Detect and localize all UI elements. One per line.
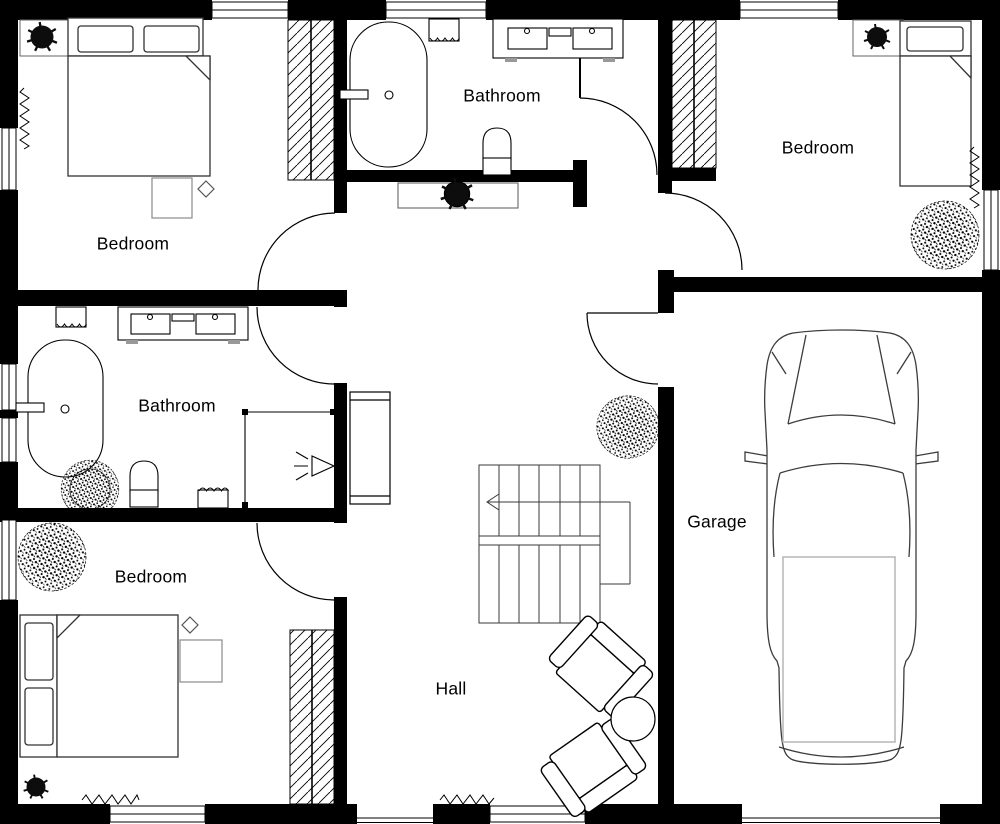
wall — [982, 20, 1000, 190]
window — [2, 364, 16, 410]
wall — [205, 804, 357, 824]
bathtub-drain — [61, 405, 69, 413]
car-mirror — [915, 452, 938, 464]
wall — [940, 804, 1000, 824]
towel-basket-icon — [198, 488, 229, 508]
window — [110, 806, 205, 822]
bed-icon — [68, 18, 210, 176]
bed-icon — [900, 21, 971, 186]
radiator-icon — [20, 88, 29, 149]
wall — [334, 182, 347, 213]
wall — [982, 270, 1000, 824]
wall — [0, 290, 347, 306]
door-arc — [665, 193, 742, 270]
door-arc — [587, 313, 658, 384]
toilet-icon — [483, 128, 511, 175]
bathtub-tap — [16, 403, 44, 412]
bed-icon — [20, 615, 178, 757]
wall — [486, 0, 740, 20]
cabinet — [350, 392, 390, 504]
wall — [334, 597, 347, 804]
wall — [334, 20, 347, 182]
wall — [433, 804, 490, 824]
window — [740, 2, 838, 18]
door-arc — [257, 307, 334, 384]
wall — [674, 277, 982, 292]
room-label-bedroom-bl: Bedroom — [115, 567, 187, 588]
wall — [0, 20, 18, 128]
window — [984, 190, 998, 270]
side-table — [180, 640, 222, 682]
wall — [0, 410, 18, 418]
garage-door-opening — [742, 818, 940, 823]
wall — [0, 0, 212, 20]
wall — [658, 20, 672, 168]
room-label-bathroom-top: Bathroom — [463, 86, 540, 107]
room-label-garage: Garage — [687, 512, 747, 533]
wall — [0, 600, 18, 824]
wall — [334, 170, 573, 182]
room-label-bedroom-tr: Bedroom — [782, 138, 854, 159]
window — [2, 128, 16, 190]
bathtub-tap — [340, 90, 368, 99]
bedroom-tl-furniture — [20, 18, 214, 218]
lamp-icon — [182, 617, 198, 633]
wall — [838, 0, 1000, 20]
round-table — [611, 697, 655, 741]
window — [212, 2, 288, 18]
bathtub-drain — [385, 91, 393, 99]
staircase-icon — [479, 465, 630, 623]
wall — [658, 181, 672, 193]
wall — [0, 508, 347, 522]
towel-basket-icon — [56, 307, 87, 327]
lamp-icon — [198, 181, 214, 197]
wardrobe-icon — [290, 630, 334, 804]
wall — [585, 804, 742, 824]
window — [2, 418, 16, 462]
window — [386, 2, 486, 18]
room-label-bedroom-tl: Bedroom — [97, 234, 169, 255]
wall — [0, 190, 18, 364]
room-label-hall: Hall — [436, 679, 467, 700]
toilet-icon — [130, 461, 158, 507]
car-mirror — [745, 452, 768, 464]
wardrobe-icon — [672, 20, 716, 168]
radiator-icon — [82, 795, 139, 804]
wall — [658, 387, 674, 804]
side-table — [152, 178, 192, 218]
door-arc — [258, 213, 335, 290]
car-icon — [745, 330, 938, 764]
door-arc — [257, 523, 334, 600]
wardrobe-icon — [288, 20, 334, 180]
bedroom-tr-furniture — [853, 20, 979, 269]
wall — [658, 168, 716, 181]
wall — [573, 160, 587, 207]
wall — [0, 804, 110, 824]
entrance-opening — [357, 818, 433, 823]
shower-icon — [242, 409, 336, 508]
double-sink-vanity-icon — [493, 19, 623, 62]
wall — [658, 270, 674, 313]
hall-furniture — [350, 392, 659, 822]
towel-basket-icon — [429, 19, 460, 41]
wall — [288, 0, 386, 20]
bedroom-bl-furniture — [18, 523, 222, 804]
wall — [334, 383, 347, 523]
room-label-bathroom-ml: Bathroom — [138, 396, 215, 417]
wall — [334, 290, 347, 307]
double-sink-vanity-icon — [118, 307, 248, 344]
floor-plan: Bedroom Bathroom Bedroom Bathroom Bedroo… — [0, 0, 1000, 824]
window — [2, 520, 16, 600]
radiator-icon — [440, 795, 494, 804]
